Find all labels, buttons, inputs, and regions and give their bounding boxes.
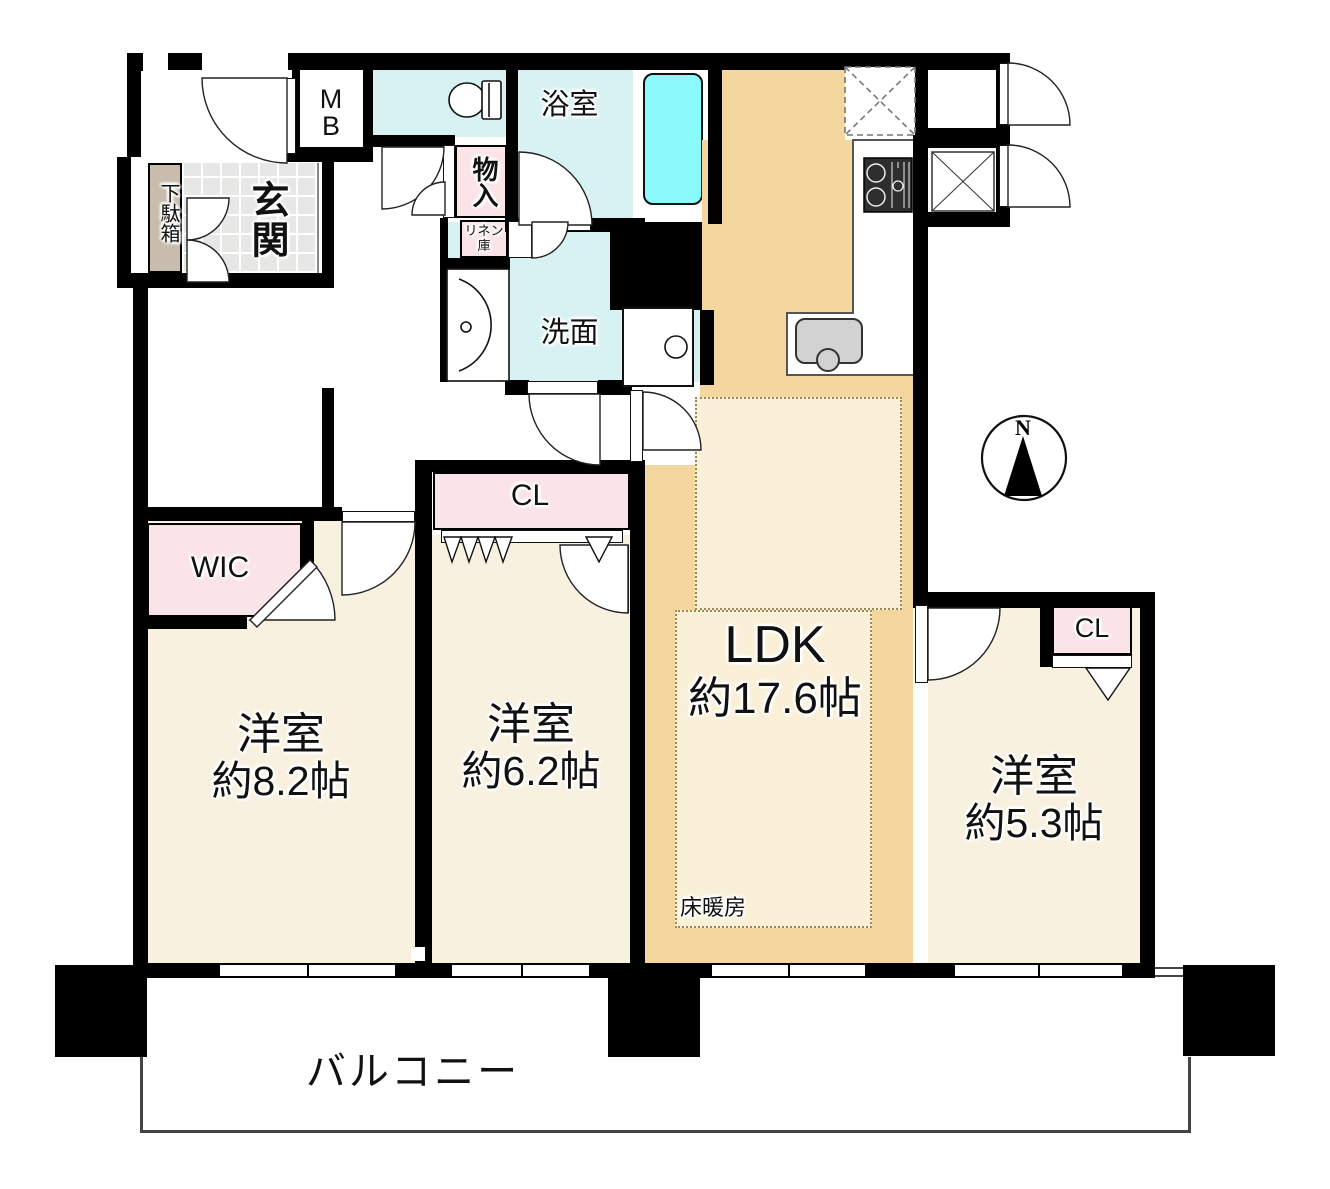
closet-53-label: CL [1054,613,1130,643]
shoe-cabinet-label: 下駄箱 [151,183,179,243]
ldk-name: LDK [655,616,895,674]
closet-x-icon [932,152,994,211]
wic-label: WIC [165,551,275,585]
door-arc [560,545,628,613]
room-82-name: 洋室 [161,710,401,759]
door-arc [532,222,568,258]
washbasin-icon [447,269,509,381]
floor-heating-label: 床暖房 [680,896,770,921]
folding-door-icon [495,537,512,562]
room-62-label: 洋室 約6.2帖 [411,700,651,795]
room-ldk-label: LDK 約17.6帖 [655,616,895,724]
ldk-size: 約17.6帖 [655,674,895,723]
door-arc [342,522,415,595]
room-62-size: 約6.2帖 [411,749,651,795]
washing-machine-icon [623,308,693,386]
room-82-size: 約8.2帖 [161,759,401,805]
balcony-label: バルコニー [283,1050,543,1095]
door-arc [1008,63,1070,125]
room-62-name: 洋室 [411,700,651,749]
stove-icon [864,158,912,212]
refrigerator-space-icon [845,67,915,135]
folding-door-icon [478,537,495,562]
room-82-label: 洋室 約8.2帖 [161,710,401,805]
compass-north-label: N [1015,415,1031,440]
storage-label: 物入 [466,156,498,208]
washroom-label: 洗面 [512,317,627,349]
plan-symbols: N [0,0,1330,1189]
folding-door-icon [1086,668,1130,700]
door-arc [202,78,287,163]
linen-closet-label: リネン庫 [461,224,507,254]
room-53-size: 約5.3帖 [914,801,1154,847]
floor-plan: N 玄関 下駄箱 MB 物入 リネン庫 浴室 洗面 WIC CL CL 洋室 約… [0,0,1330,1189]
door-arc [187,240,229,282]
entrance-label: 玄関 [243,180,287,260]
kitchen-sink-icon [796,319,862,371]
door-arc [643,392,701,450]
bath-label: 浴室 [512,89,627,121]
door-arc [519,152,592,225]
folding-door-icon [444,537,461,562]
meter-box-label: MB [314,86,348,140]
door-arc [529,394,600,465]
compass-icon: N [982,415,1066,500]
closet-62-label: CL [470,479,590,513]
folding-door-icon [461,537,478,562]
room-53-name: 洋室 [914,752,1154,801]
door-arc [1008,145,1070,207]
door-arc [928,608,1000,680]
room-53-label: 洋室 約5.3帖 [914,752,1154,847]
toilet-icon [449,81,501,119]
door-arc [187,198,229,240]
